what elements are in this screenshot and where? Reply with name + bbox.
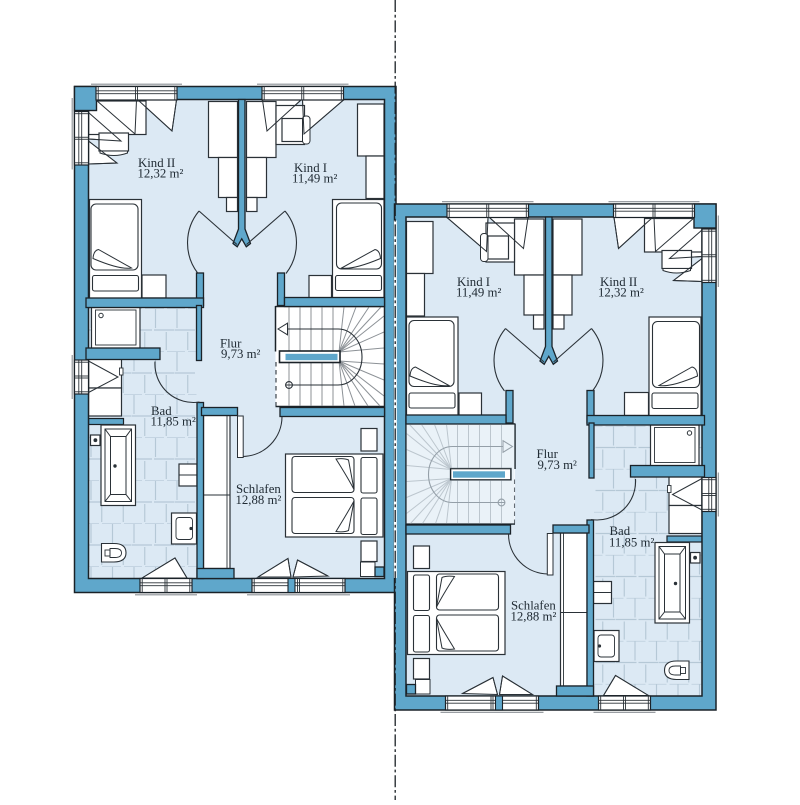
svg-text:9,73 m²: 9,73 m² bbox=[538, 458, 578, 472]
svg-text:11,49 m²: 11,49 m² bbox=[456, 285, 501, 299]
svg-text:12,32 m²: 12,32 m² bbox=[138, 167, 184, 181]
svg-text:11,85 m²: 11,85 m² bbox=[151, 415, 196, 429]
svg-text:12,88 m²: 12,88 m² bbox=[236, 493, 282, 507]
svg-text:12,88 m²: 12,88 m² bbox=[511, 609, 557, 623]
svg-text:12,32 m²: 12,32 m² bbox=[598, 285, 644, 299]
svg-text:11,49 m²: 11,49 m² bbox=[292, 172, 337, 186]
svg-text:9,73 m²: 9,73 m² bbox=[221, 347, 261, 361]
svg-text:11,85 m²: 11,85 m² bbox=[609, 536, 654, 550]
